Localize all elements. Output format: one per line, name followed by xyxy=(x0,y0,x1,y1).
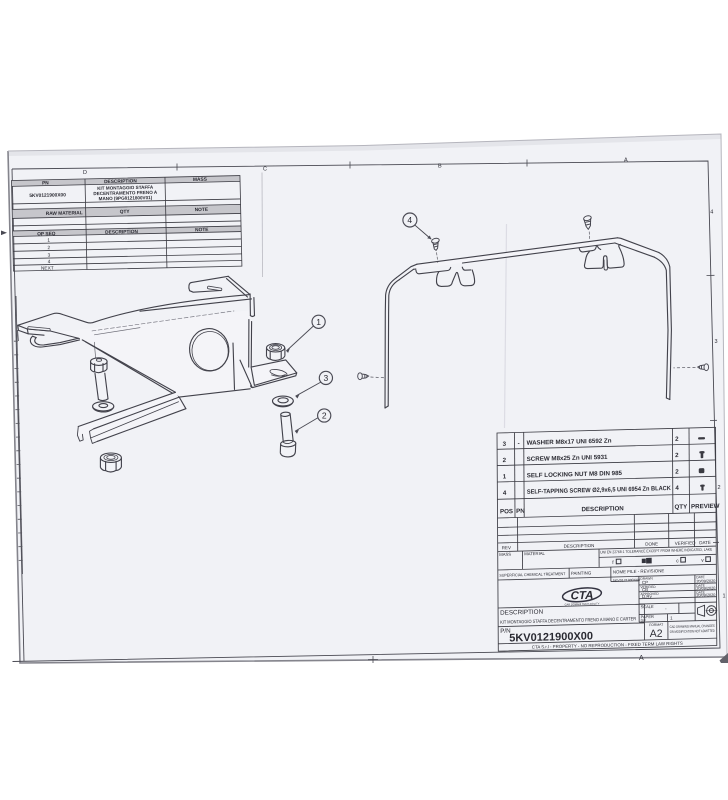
svg-text:PREVIEW: PREVIEW xyxy=(691,503,720,511)
svg-text:2: 2 xyxy=(322,411,327,421)
svg-text:CTA: CTA xyxy=(571,590,594,603)
svg-text:NOTE: NOTE xyxy=(195,227,209,233)
svg-text:3: 3 xyxy=(503,441,507,448)
svg-text:2: 2 xyxy=(675,468,679,475)
svg-text:2: 2 xyxy=(718,485,721,491)
svg-text:DIF: DIF xyxy=(641,619,646,623)
svg-text:OP SEQ: OP SEQ xyxy=(37,231,56,237)
svg-text:NOTE: NOTE xyxy=(195,207,209,213)
svg-text:QTY: QTY xyxy=(120,209,131,215)
svg-text:4: 4 xyxy=(710,210,713,216)
svg-text:MATERIAL: MATERIAL xyxy=(524,551,545,557)
svg-text:4: 4 xyxy=(48,259,51,265)
svg-text:3: 3 xyxy=(48,253,51,259)
svg-text:3: 3 xyxy=(324,373,329,383)
svg-text:NEXT: NEXT xyxy=(41,265,54,271)
svg-text:PAINTING: PAINTING xyxy=(571,570,592,576)
svg-text:1: 1 xyxy=(723,594,726,600)
svg-text:4: 4 xyxy=(675,485,679,492)
svg-text:DESCRIPTION: DESCRIPTION xyxy=(105,229,138,236)
svg-text:20/09/2020: 20/09/2020 xyxy=(696,586,715,590)
svg-text:5KV0121900X00: 5KV0121900X00 xyxy=(29,192,66,199)
svg-text:1: 1 xyxy=(316,317,321,327)
svg-text:VERIFIED: VERIFIED xyxy=(675,540,697,546)
svg-text:PN: PN xyxy=(42,180,49,186)
svg-text:3: 3 xyxy=(715,339,718,345)
svg-text:DESCRIPTION: DESCRIPTION xyxy=(564,543,595,549)
svg-text:SCALE: SCALE xyxy=(641,604,654,609)
svg-text:B: B xyxy=(438,164,442,170)
svg-text:DESCRIPTION: DESCRIPTION xyxy=(500,609,544,617)
svg-text:5KV0121900X00: 5KV0121900X00 xyxy=(613,578,640,583)
svg-text:FORMAT: FORMAT xyxy=(649,623,663,627)
svg-text:2: 2 xyxy=(503,457,507,464)
svg-text:-: - xyxy=(518,440,520,447)
svg-text:A2: A2 xyxy=(650,628,663,640)
svg-text:1: 1 xyxy=(503,473,507,480)
svg-text:A: A xyxy=(624,158,628,164)
svg-text:2: 2 xyxy=(675,452,679,459)
svg-text:REV: REV xyxy=(502,545,511,550)
svg-text:MASS: MASS xyxy=(193,177,208,183)
svg-text:DATE: DATE xyxy=(699,540,711,545)
svg-text:4: 4 xyxy=(503,490,507,497)
svg-text:4: 4 xyxy=(407,215,412,225)
svg-text:MASS: MASS xyxy=(499,552,511,557)
svg-text:DESCRIPTION: DESCRIPTION xyxy=(104,178,137,185)
svg-text:DESCRIPTION: DESCRIPTION xyxy=(581,505,624,513)
svg-text:20/09/2020: 20/09/2020 xyxy=(696,593,715,597)
svg-text:QTY: QTY xyxy=(674,504,688,511)
svg-text:A: A xyxy=(639,655,644,662)
svg-text:POS: POS xyxy=(500,508,513,515)
svg-text:2: 2 xyxy=(47,245,50,251)
svg-text:CP: CP xyxy=(642,580,648,585)
svg-text:20/09/2020: 20/09/2020 xyxy=(696,579,715,583)
svg-text:CB: CB xyxy=(642,587,648,592)
svg-text:RAW MATERIAL: RAW MATERIAL xyxy=(46,210,83,217)
svg-text:C: C xyxy=(263,167,267,173)
svg-text:D.Rv: D.Rv xyxy=(642,594,653,599)
svg-text:DONE: DONE xyxy=(645,541,658,546)
svg-text:1: 1 xyxy=(47,238,50,244)
svg-text:D: D xyxy=(83,170,87,176)
svg-text:2: 2 xyxy=(675,436,679,443)
svg-text:PN: PN xyxy=(516,508,525,515)
